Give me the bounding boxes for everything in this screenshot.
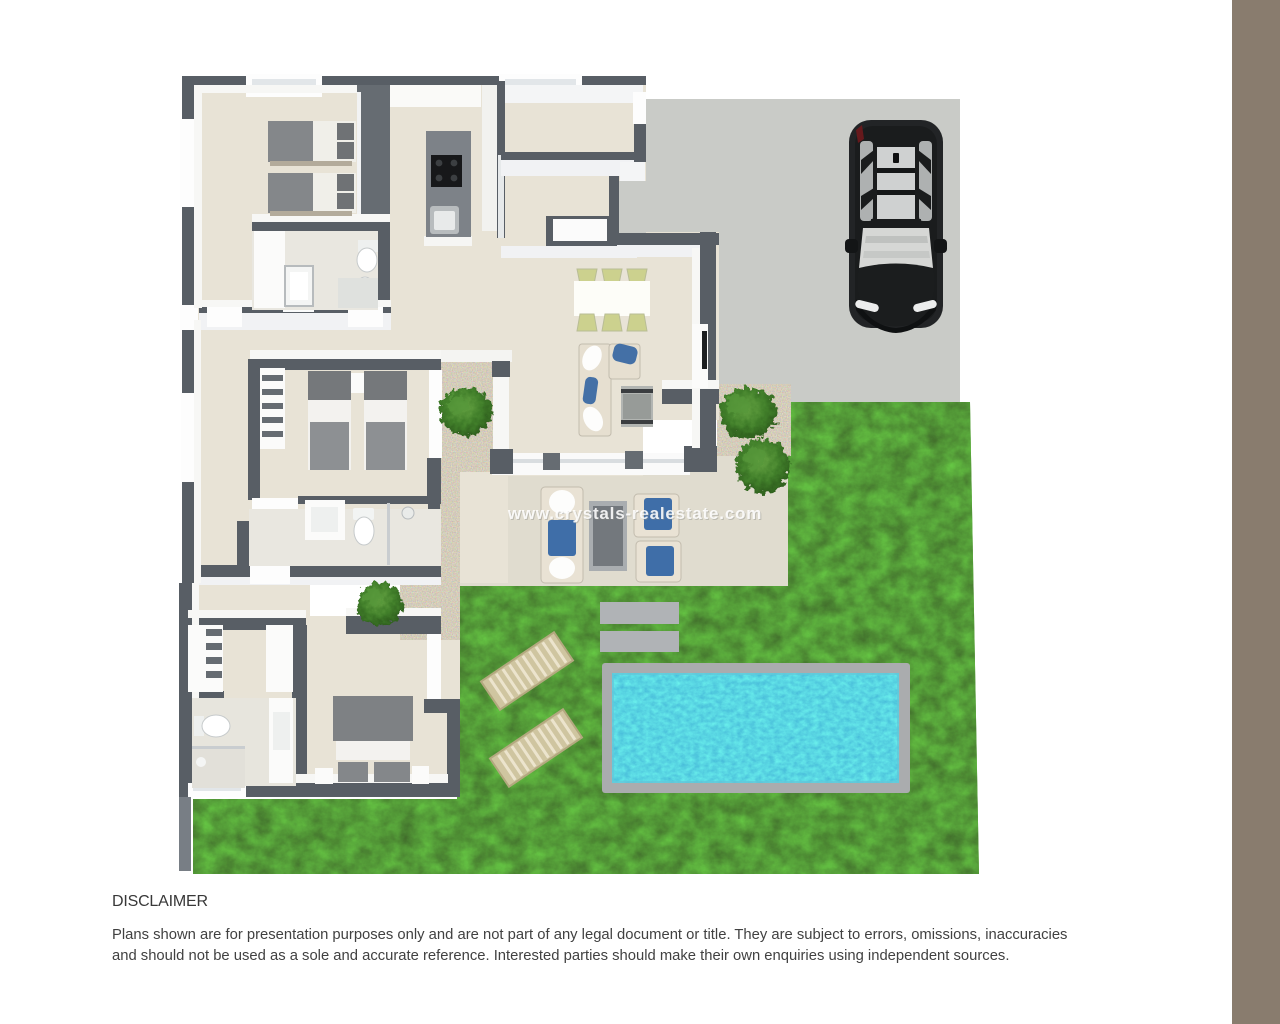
svg-text:www.crystals-realestate.com: www.crystals-realestate.com bbox=[507, 504, 762, 523]
